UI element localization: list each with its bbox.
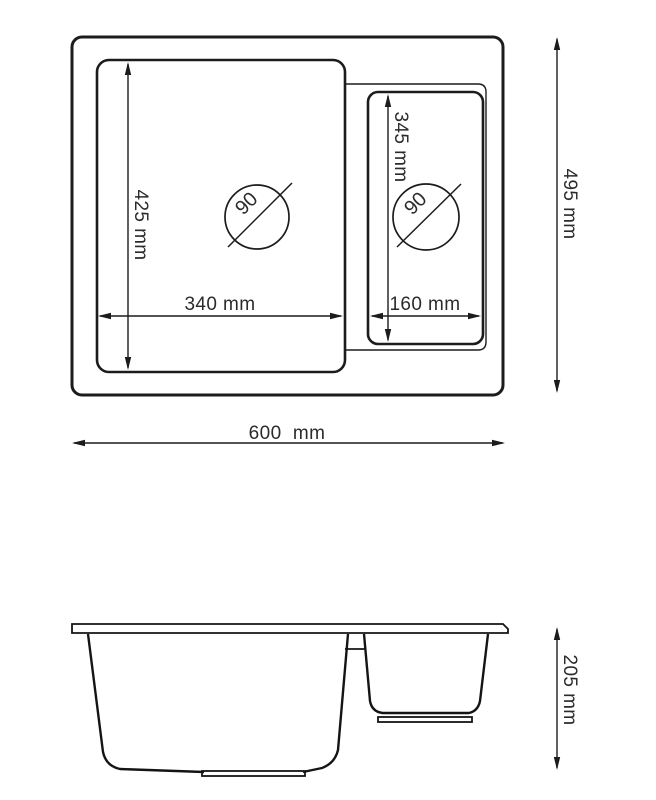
dim-label-small-bowl-depth: 345 mm: [390, 111, 411, 182]
side-view-rim: [72, 624, 508, 633]
dim-overall-width: 600 mm: [72, 423, 505, 446]
small-drain: 90: [393, 184, 461, 250]
sink-side-view: 205 mm: [72, 624, 580, 776]
dim-small-bowl-width: 160 mm: [370, 294, 481, 319]
dim-main-bowl-depth: 425 mm: [125, 62, 151, 370]
dim-overall-height: 205 mm: [554, 627, 580, 770]
sink-top-view: 90 90 425 mm 340 mm 345 mm: [72, 37, 580, 446]
side-view-main-bowl-right: [303, 634, 348, 772]
dim-label-overall-depth: 495 mm: [559, 168, 580, 239]
dim-label-main-bowl-width: 340 mm: [184, 294, 255, 315]
dim-main-bowl-width: 340 mm: [98, 294, 343, 319]
side-view-main-drain-outlet: [202, 771, 305, 776]
side-view-small-bowl: [364, 634, 488, 713]
dim-overall-depth: 495 mm: [554, 37, 580, 393]
side-view-small-drain-outlet: [378, 717, 472, 722]
dim-label-small-bowl-width: 160 mm: [389, 294, 460, 315]
dim-label-main-bowl-depth: 425 mm: [130, 189, 151, 260]
sink-spec-sheet: 90 90 425 mm 340 mm 345 mm: [0, 0, 656, 800]
dim-label-overall-width: 600 mm: [249, 423, 326, 444]
side-view-main-bowl-left: [88, 634, 204, 772]
dim-label-overall-height: 205 mm: [559, 654, 580, 725]
small-drain-circle: [393, 184, 459, 250]
main-drain: 90: [225, 183, 292, 249]
